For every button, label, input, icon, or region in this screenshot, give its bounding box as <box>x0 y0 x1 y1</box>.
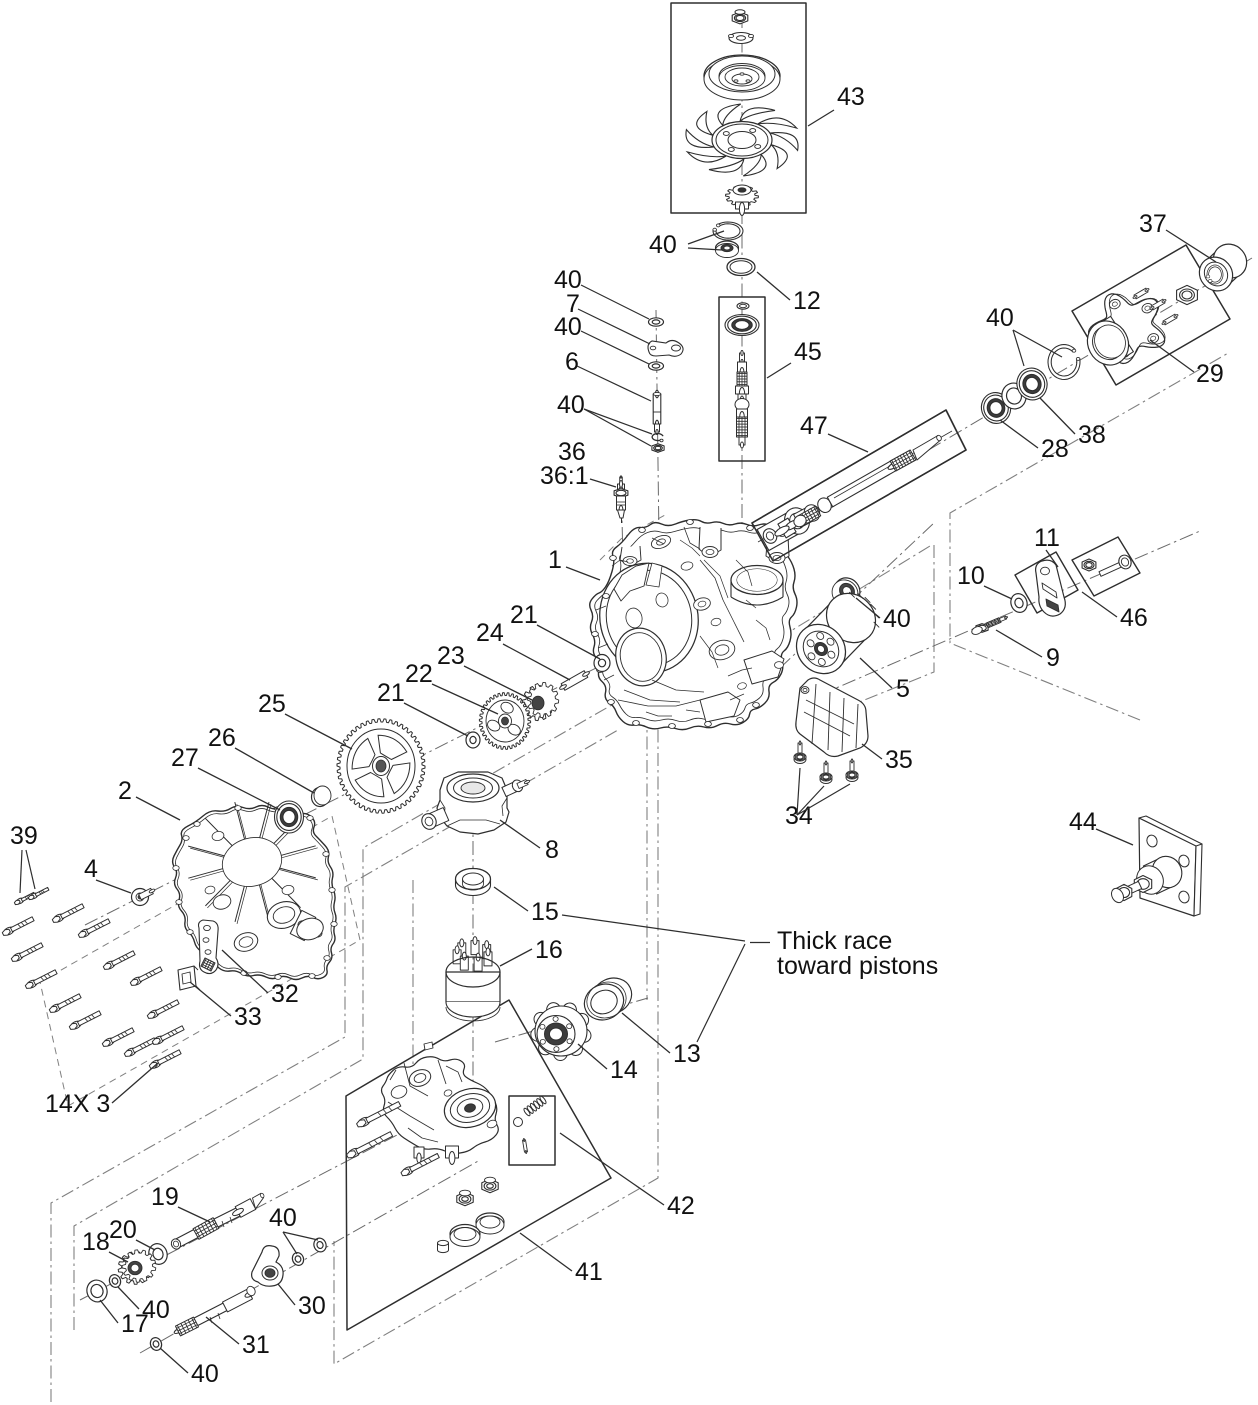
svg-text:31: 31 <box>242 1331 270 1359</box>
svg-text:5: 5 <box>896 675 910 703</box>
svg-text:47: 47 <box>800 412 828 440</box>
svg-text:15: 15 <box>531 898 559 926</box>
svg-text:39: 39 <box>10 822 38 850</box>
svg-text:37: 37 <box>1139 210 1167 238</box>
svg-text:42: 42 <box>667 1192 695 1220</box>
svg-text:1: 1 <box>548 546 562 574</box>
svg-text:26: 26 <box>208 724 236 752</box>
svg-text:40: 40 <box>142 1296 170 1324</box>
svg-text:2: 2 <box>118 777 132 805</box>
svg-text:34: 34 <box>785 802 813 830</box>
svg-text:40: 40 <box>986 304 1014 332</box>
svg-text:33: 33 <box>234 1003 262 1031</box>
svg-text:23: 23 <box>437 642 465 670</box>
svg-text:40: 40 <box>269 1204 297 1232</box>
svg-text:14: 14 <box>610 1056 638 1084</box>
svg-text:16: 16 <box>535 936 563 964</box>
svg-text:21: 21 <box>377 679 405 707</box>
svg-text:10: 10 <box>957 562 985 590</box>
svg-text:13: 13 <box>673 1040 701 1068</box>
svg-text:27: 27 <box>171 744 199 772</box>
svg-text:40: 40 <box>883 605 911 633</box>
svg-text:36:1: 36:1 <box>540 462 589 490</box>
svg-text:4: 4 <box>84 855 98 883</box>
svg-text:21: 21 <box>510 601 538 629</box>
svg-text:30: 30 <box>298 1292 326 1320</box>
svg-text:toward pistons: toward pistons <box>777 952 938 980</box>
svg-text:40: 40 <box>191 1360 219 1388</box>
svg-text:9: 9 <box>1046 644 1060 672</box>
svg-text:14X 3: 14X 3 <box>45 1090 110 1118</box>
svg-text:Thick race: Thick race <box>777 927 892 955</box>
svg-text:28: 28 <box>1041 435 1069 463</box>
svg-text:29: 29 <box>1196 360 1224 388</box>
svg-text:44: 44 <box>1069 808 1097 836</box>
svg-text:35: 35 <box>885 746 913 774</box>
svg-text:40: 40 <box>554 313 582 341</box>
svg-text:43: 43 <box>837 83 865 111</box>
svg-text:12: 12 <box>793 287 821 315</box>
svg-text:8: 8 <box>545 836 559 864</box>
svg-text:41: 41 <box>575 1258 603 1286</box>
svg-text:40: 40 <box>649 231 677 259</box>
svg-text:46: 46 <box>1120 604 1148 632</box>
svg-text:25: 25 <box>258 690 286 718</box>
svg-text:6: 6 <box>565 348 579 376</box>
svg-text:20: 20 <box>109 1216 137 1244</box>
svg-text:19: 19 <box>151 1183 179 1211</box>
svg-text:24: 24 <box>476 619 504 647</box>
svg-text:38: 38 <box>1078 421 1106 449</box>
svg-text:18: 18 <box>82 1228 110 1256</box>
svg-text:32: 32 <box>271 980 299 1008</box>
svg-text:11: 11 <box>1034 524 1060 552</box>
svg-text:40: 40 <box>557 391 585 419</box>
svg-text:45: 45 <box>794 338 822 366</box>
svg-text:22: 22 <box>405 660 433 688</box>
